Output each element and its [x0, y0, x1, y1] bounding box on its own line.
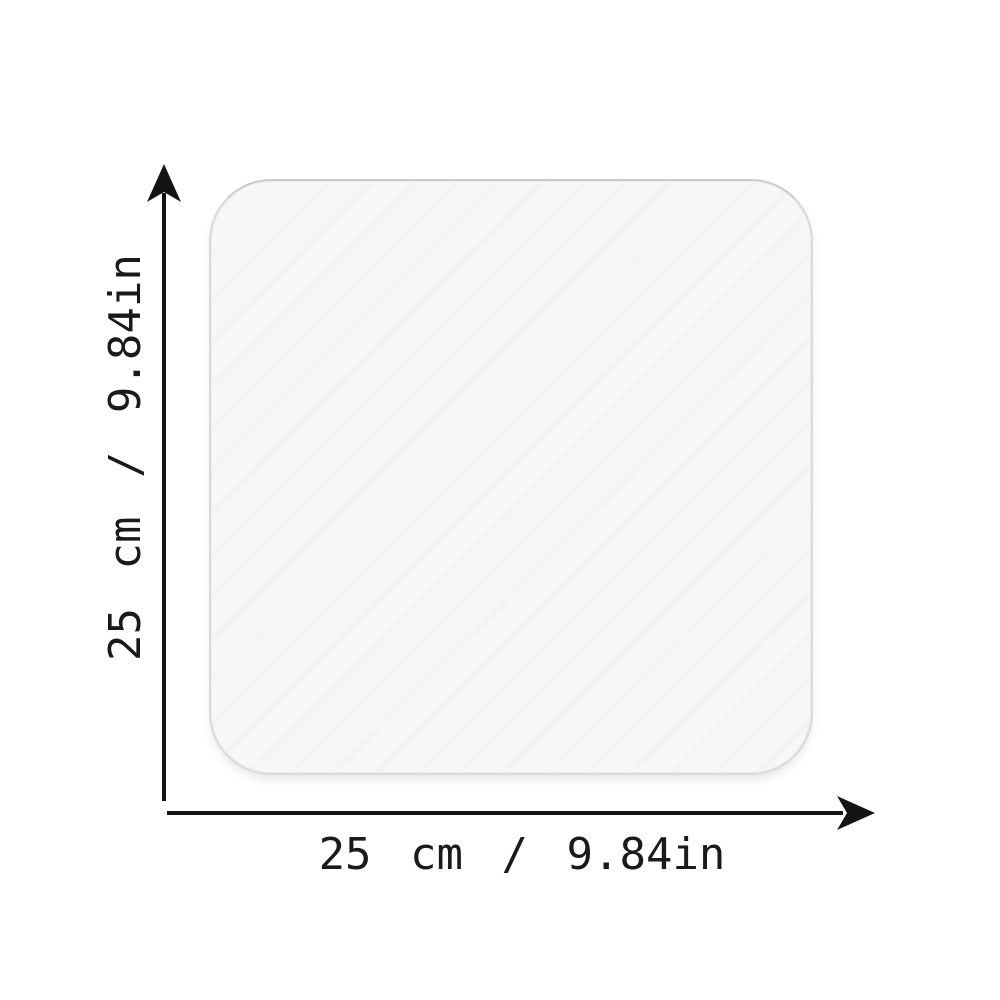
height-dimension-label: 25 cm / 9.84in: [102, 261, 152, 661]
width-dimension-label: 25 cm / 9.84in: [170, 831, 874, 879]
vertical-dimension-arrow: [147, 164, 181, 801]
horizontal-dimension-arrow: [167, 796, 875, 830]
product-dimension-diagram: 25 cm / 9.84in 25 cm / 9.84in: [0, 0, 1000, 1000]
